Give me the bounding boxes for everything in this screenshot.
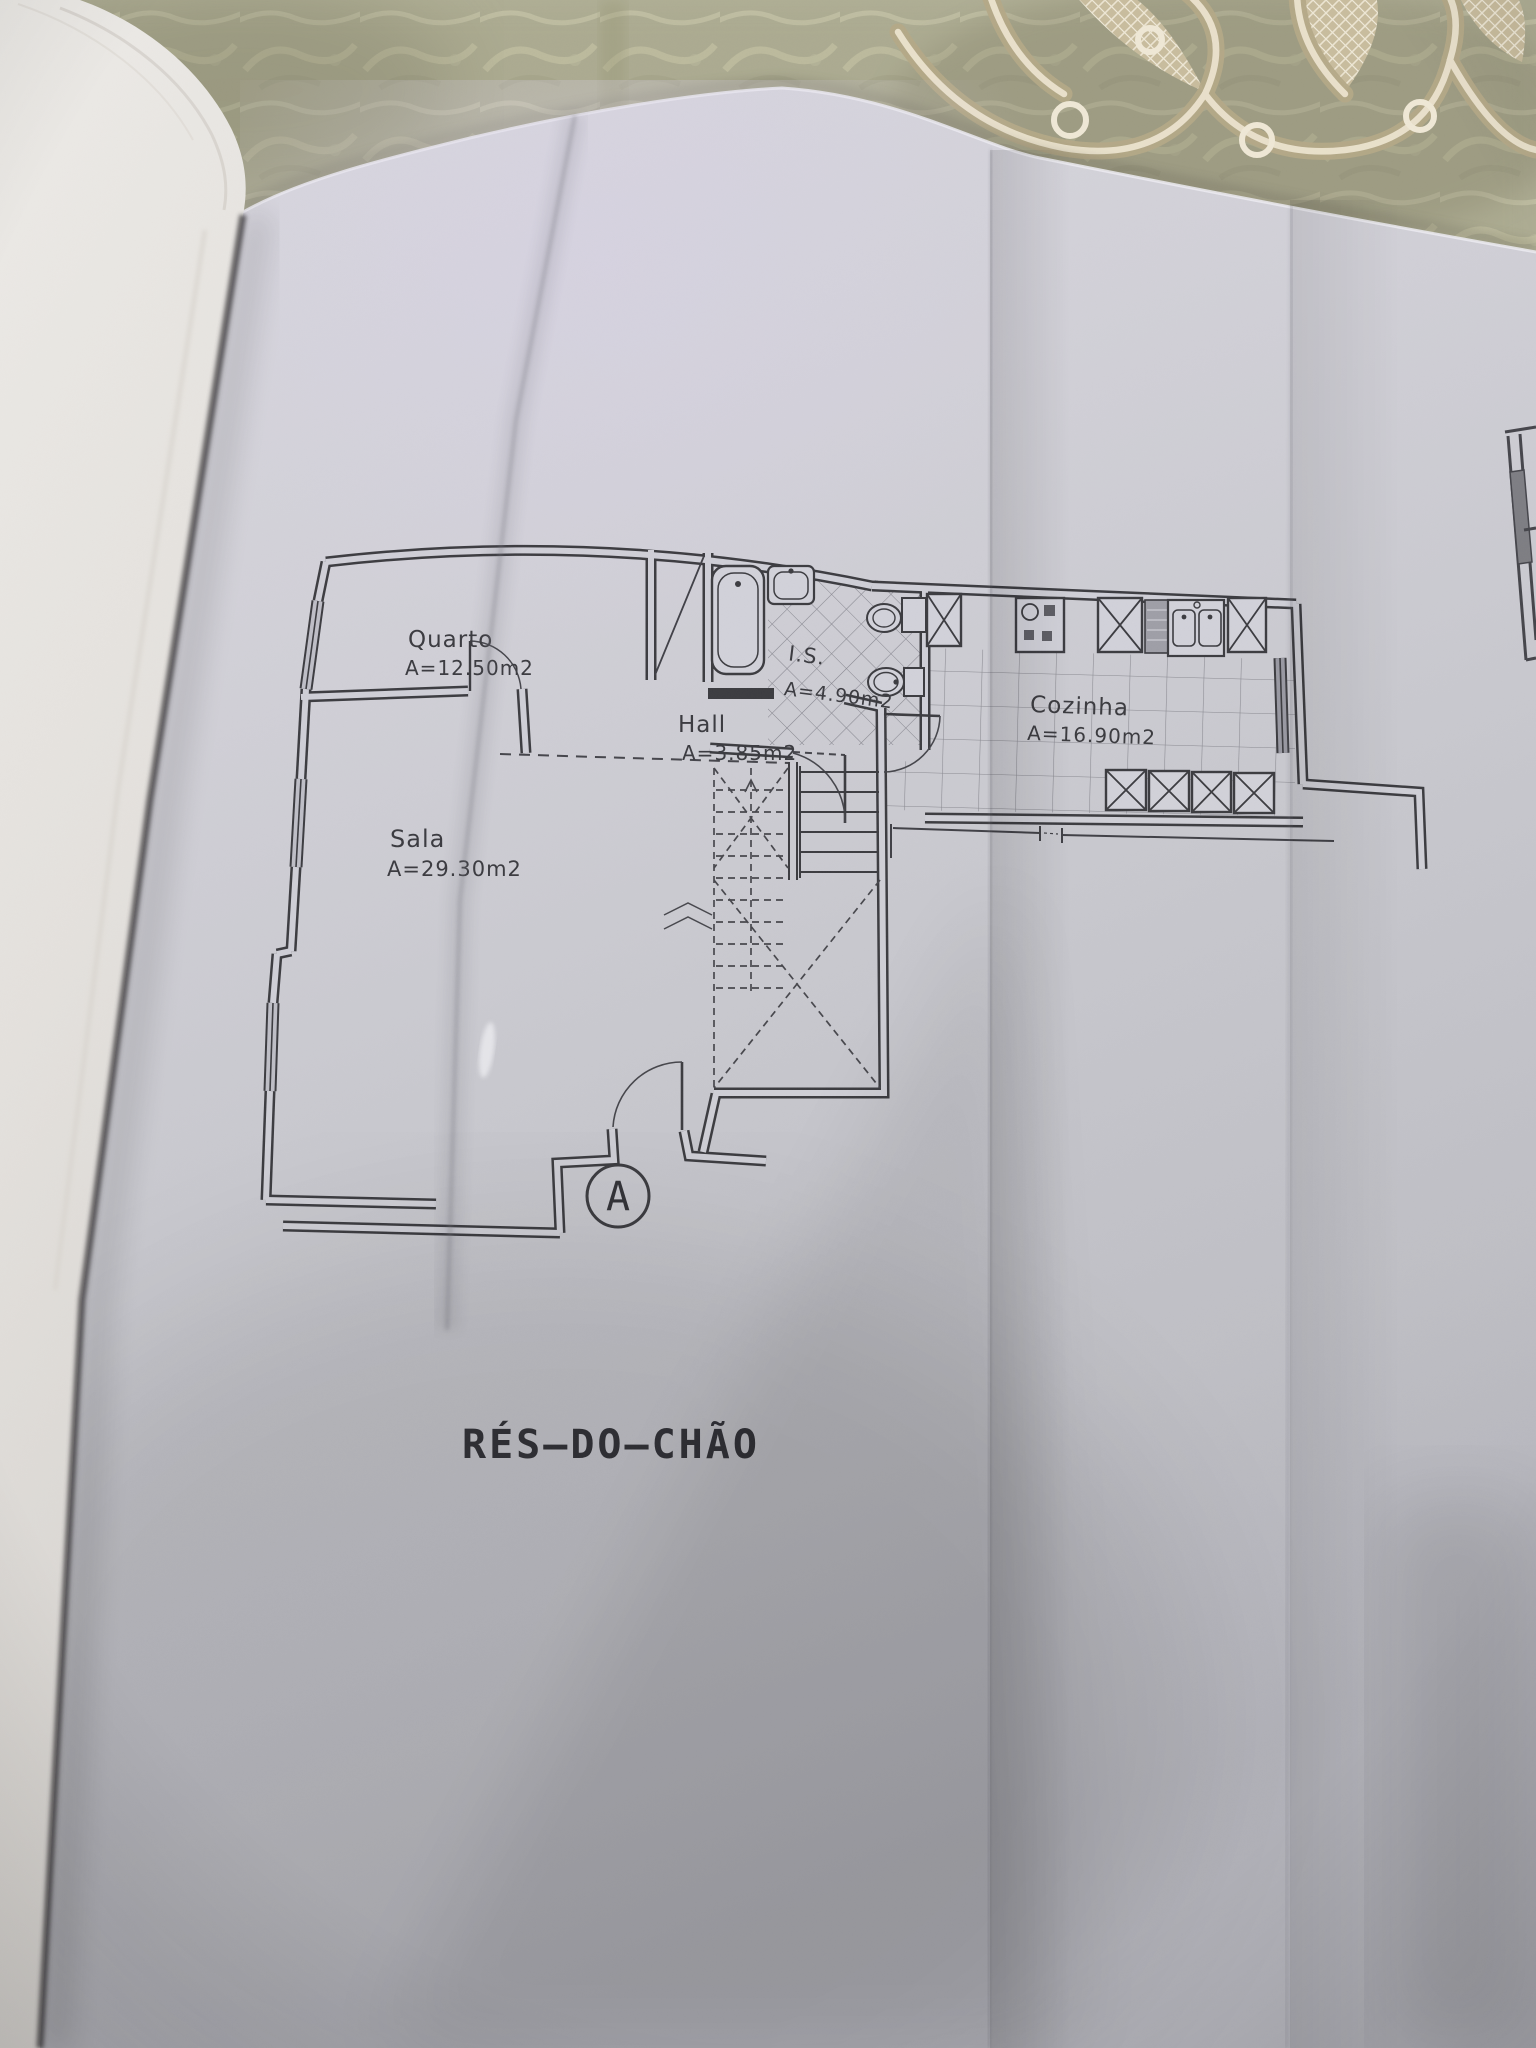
vignette (0, 0, 1536, 2048)
photo-of-floor-plan: Quarto A=12.50m2 Sala A=29.30m2 Hall A=3… (0, 0, 1536, 2048)
